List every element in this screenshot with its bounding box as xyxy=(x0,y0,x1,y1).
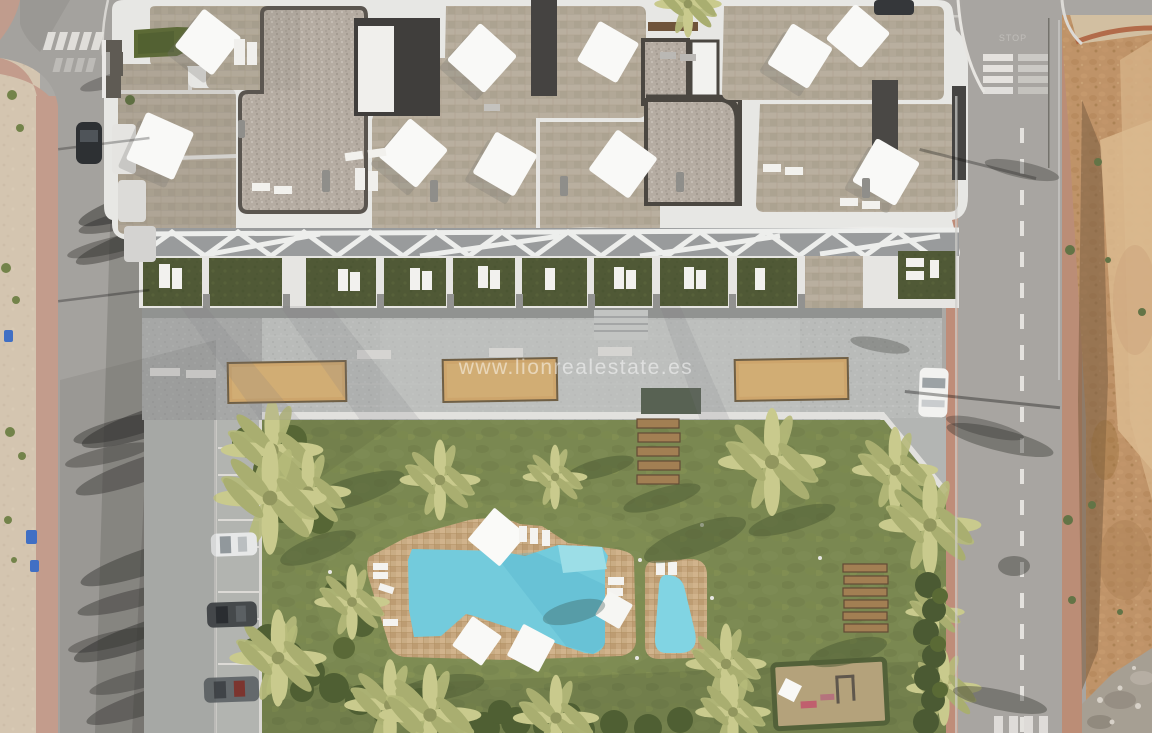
svg-text:www.lionrealestate.es: www.lionrealestate.es xyxy=(458,356,694,379)
